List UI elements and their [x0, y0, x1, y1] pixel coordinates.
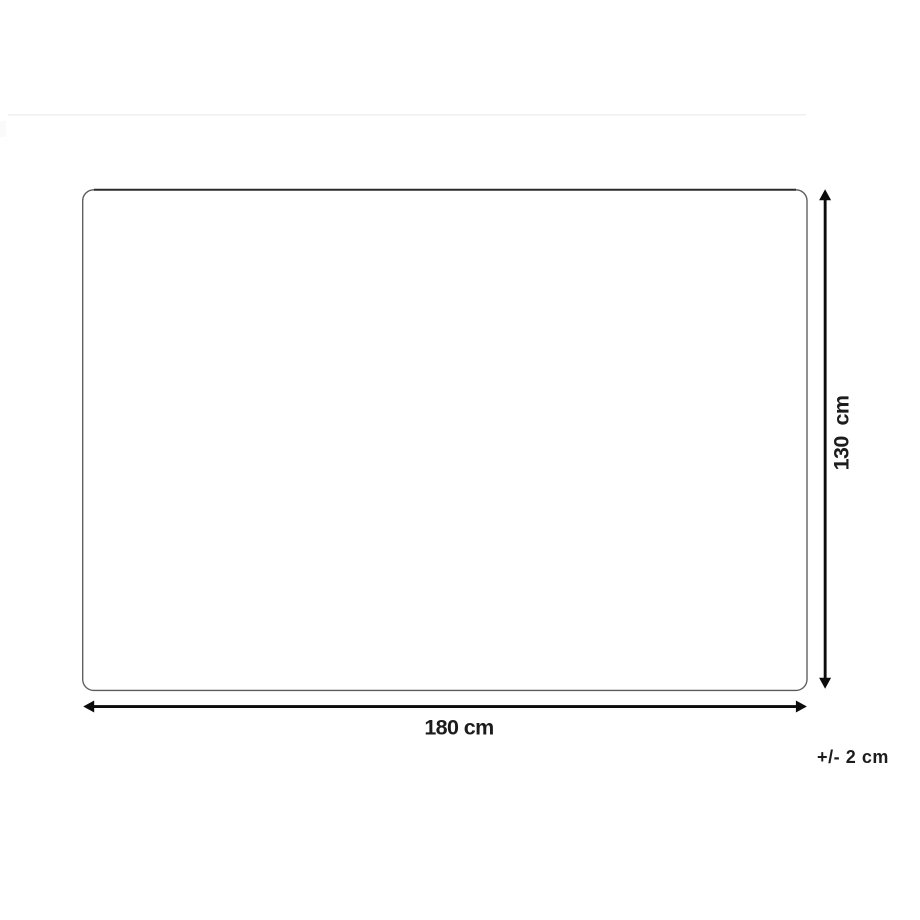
svg-text:130 cm: 130 cm [829, 396, 853, 471]
svg-text:180 cm: 180 cm [424, 715, 493, 739]
svg-text:+/- 2 cm: +/- 2 cm [817, 747, 889, 767]
